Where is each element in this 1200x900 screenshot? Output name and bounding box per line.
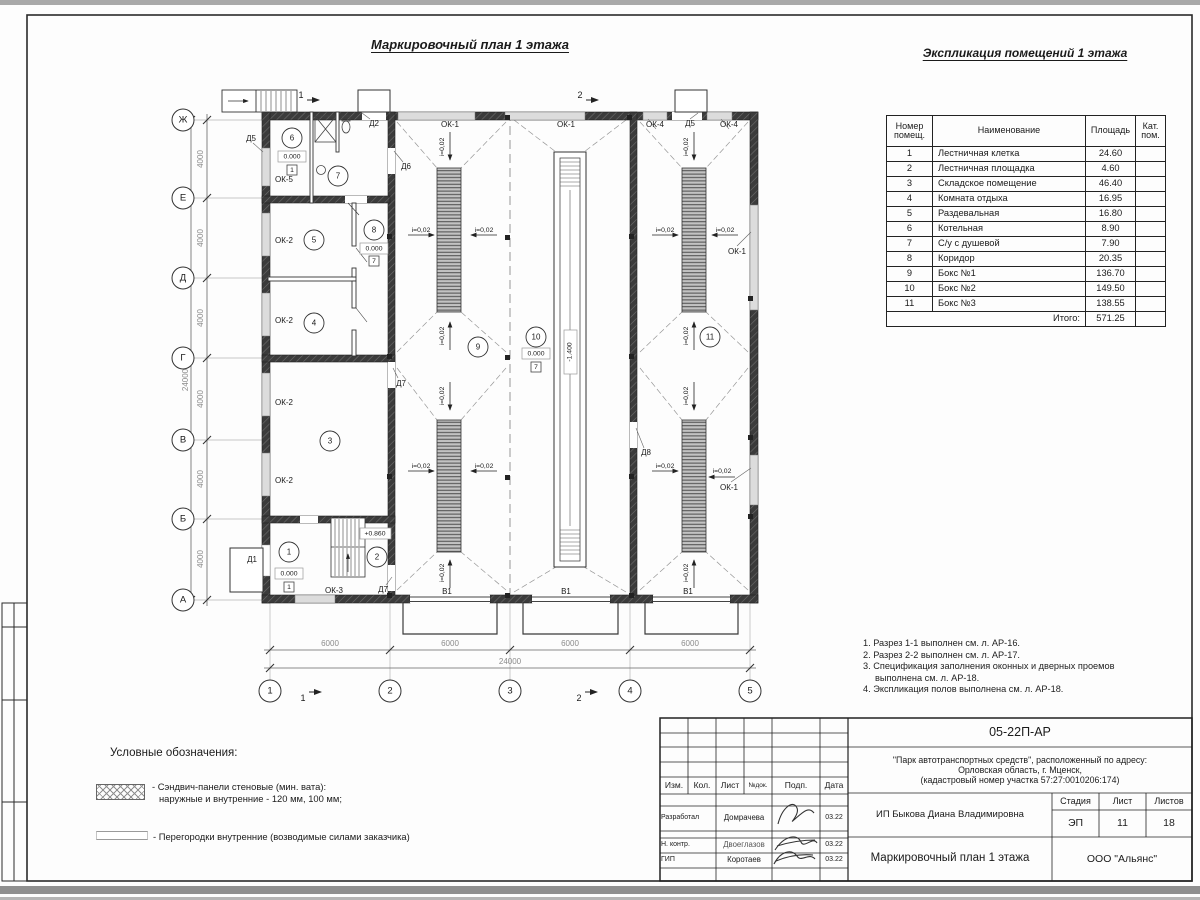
table-row: 6 Котельная 8.90 xyxy=(887,222,1166,237)
room-num-cell: 10 xyxy=(887,282,933,297)
name-gip: Коротаев xyxy=(716,853,772,868)
table-row: 10 Бокс №2 149.50 xyxy=(887,282,1166,297)
legend-title: Условные обозначения: xyxy=(110,747,237,759)
label-d6: Д6 xyxy=(401,162,411,171)
dim-4000: 4000 xyxy=(196,470,205,488)
table-row: 5 Раздевальная 16.80 xyxy=(887,207,1166,222)
table-row: 2 Лестничная площадка 4.60 xyxy=(887,162,1166,177)
col-ndoc: №док. xyxy=(744,777,772,794)
total-label: Итого: xyxy=(887,312,1086,327)
leader-lines xyxy=(253,113,751,585)
label-ok1: ОК-1 xyxy=(557,120,576,129)
slope-label: i=0,02 xyxy=(683,563,690,582)
slope-label: i=0,02 xyxy=(656,227,675,234)
slope-label: i=0,02 xyxy=(683,326,690,345)
axis-row-label: Б xyxy=(180,514,186,525)
note-item: 1. Разрез 1-1 выполнен см. л. АР-16. xyxy=(863,638,1155,650)
col-podp: Подп. xyxy=(772,777,820,794)
room-number: 3 xyxy=(328,437,333,446)
doc-number: 05-22П-АР xyxy=(848,718,1192,747)
stage-label: Стадия xyxy=(1052,793,1099,810)
gate-aprons xyxy=(403,603,738,634)
client-name: ИП Быкова Диана Владимировна xyxy=(848,793,1052,837)
room-name-cell: Лестничная клетка xyxy=(933,147,1086,162)
label-d5: Д5 xyxy=(685,119,695,128)
slope-label: i=0,02 xyxy=(683,386,690,405)
section-mark-1: 1 xyxy=(300,693,305,703)
axis-row-label: Ж xyxy=(179,115,188,126)
slope-label: i=0,02 xyxy=(475,463,494,470)
table-header-row: Номер помещ. Наименование Площадь Кат. п… xyxy=(887,116,1166,147)
label-ok1: ОК-1 xyxy=(720,483,739,492)
room-name-cell: Раздевальная xyxy=(933,207,1086,222)
col-izm: Изм. xyxy=(660,777,688,794)
dim-4000: 4000 xyxy=(196,550,205,568)
label-ok1: ОК-1 xyxy=(728,247,747,256)
table-row: 1 Лестничная клетка 24.60 xyxy=(887,147,1166,162)
section-mark-2: 2 xyxy=(577,90,582,100)
sanitary-fixtures xyxy=(315,116,350,175)
room-area-cell: 7.90 xyxy=(1086,237,1136,252)
label-d8: Д8 xyxy=(641,448,651,457)
note-item: 4. Экспликация полов выполнена см. л. АР… xyxy=(863,684,1155,696)
sheets-value: 18 xyxy=(1146,810,1192,837)
label-ok5: ОК-5 xyxy=(275,175,294,184)
sink-icon xyxy=(317,166,326,175)
explication-table: Номер помещ. Наименование Площадь Кат. п… xyxy=(886,115,1166,327)
col-kol: Кол. xyxy=(688,777,716,794)
room-kat-cell xyxy=(1136,267,1166,282)
drawing-sheet: Ж Е Д Г В Б А 1 2 3 4 5 4000 4000 4000 4… xyxy=(0,0,1200,900)
note-item: 2. Разрез 2-2 выполнен см. л. АР-17. xyxy=(863,650,1155,662)
section-mark-2: 2 xyxy=(576,693,581,703)
room-num-cell: 4 xyxy=(887,192,933,207)
level-zero: 0.000 xyxy=(365,246,382,253)
axis-row-label: Е xyxy=(180,193,186,204)
room-num-cell: 9 xyxy=(887,267,933,282)
room-number: 10 xyxy=(532,333,541,342)
room-kat-cell xyxy=(1136,162,1166,177)
axis-col-label: 1 xyxy=(267,686,272,697)
room-num-cell: 8 xyxy=(887,252,933,267)
floor-type: 1 xyxy=(287,584,291,591)
label-d2: Д2 xyxy=(369,119,379,128)
sheet-value: 11 xyxy=(1099,810,1146,837)
dim-6000: 6000 xyxy=(561,639,579,648)
room-area-cell: 20.35 xyxy=(1086,252,1136,267)
label-d1: Д1 xyxy=(247,555,257,564)
date-gip: 03.22 xyxy=(820,853,848,868)
dim-4000: 4000 xyxy=(196,390,205,408)
signature-icon xyxy=(775,837,817,850)
room-number: 4 xyxy=(312,319,317,328)
legend-item-2: - Перегородки внутренние (возводимые сил… xyxy=(153,831,493,843)
slope-label: i=0,02 xyxy=(439,326,446,345)
room-name-cell: Коридор xyxy=(933,252,1086,267)
room-kat-cell xyxy=(1136,192,1166,207)
axis-col-label: 5 xyxy=(747,686,752,697)
room-area-cell: 4.60 xyxy=(1086,162,1136,177)
room-name-cell: Лестничная площадка xyxy=(933,162,1086,177)
level-zero: 0.000 xyxy=(280,571,297,578)
sheet-label: Лист xyxy=(1099,793,1146,810)
legend-item-1: - Сэндвич-панели стеновые (мин. вата): н… xyxy=(152,781,452,805)
name-developer: Домрачева xyxy=(716,806,772,831)
label-d5: Д5 xyxy=(246,134,256,143)
dim-6000: 6000 xyxy=(441,639,459,648)
date-ncontrol: 03.22 xyxy=(820,838,848,853)
floor-type: 7 xyxy=(534,364,538,371)
room-area-cell: 16.80 xyxy=(1086,207,1136,222)
room-number: 1 xyxy=(287,548,292,557)
room-kat-cell xyxy=(1136,147,1166,162)
room-number: 8 xyxy=(372,226,377,235)
axis-row-label: Д xyxy=(180,273,187,284)
explication-title: Экспликация помещений 1 этажа xyxy=(880,44,1170,62)
room-number: 6 xyxy=(290,134,295,143)
date-developer: 03.22 xyxy=(820,806,848,831)
axis-col-label: 2 xyxy=(387,686,392,697)
signatures xyxy=(774,804,817,864)
project-line-3: (кадастровый номер участка 57:27:0010206… xyxy=(921,775,1120,785)
label-ok4: ОК-4 xyxy=(646,120,665,129)
table-row: 11 Бокс №3 138.55 xyxy=(887,297,1166,312)
signature-icon xyxy=(774,852,815,864)
stage-value: ЭП xyxy=(1052,810,1099,837)
room-kat-cell xyxy=(1136,252,1166,267)
slope-label: i=0,02 xyxy=(412,463,431,470)
legend-swatch-partition xyxy=(96,831,148,840)
notes-list: 1. Разрез 1-1 выполнен см. л. АР-16. 2. … xyxy=(863,638,1155,696)
legend-swatch-sandwich-panel xyxy=(96,784,145,800)
table-row: 4 Комната отдыха 16.95 xyxy=(887,192,1166,207)
col-list: Лист xyxy=(716,777,744,794)
dim-4000: 4000 xyxy=(196,150,205,168)
room-kat-cell xyxy=(1136,207,1166,222)
axis-row-label: Г xyxy=(180,353,185,364)
room-number: 5 xyxy=(312,236,317,245)
exterior-stair xyxy=(222,90,297,112)
plan-title-text: Маркировочный план 1 этажа xyxy=(371,37,569,52)
label-ok2: ОК-2 xyxy=(275,236,294,245)
label-d7: Д7 xyxy=(378,585,388,594)
room-area-cell: 24.60 xyxy=(1086,147,1136,162)
axis-col-label: 4 xyxy=(627,686,632,697)
level-plus: +0.860 xyxy=(365,531,386,538)
room-num-cell: 3 xyxy=(887,177,933,192)
slope-label: i=0,02 xyxy=(475,227,494,234)
room-number: 9 xyxy=(476,343,481,352)
sheets-label: Листов xyxy=(1146,793,1192,810)
table-row: 8 Коридор 20.35 xyxy=(887,252,1166,267)
legend-item-1-line2: наружные и внутренние - 120 мм, 100 мм; xyxy=(152,793,452,805)
room-name-cell: Бокс №2 xyxy=(933,282,1086,297)
room-area-cell: 8.90 xyxy=(1086,222,1136,237)
room-num-cell: 11 xyxy=(887,297,933,312)
room-area-cell: 138.55 xyxy=(1086,297,1136,312)
role-gip: ГИП xyxy=(661,853,715,868)
table-total-row: Итого: 571.25 xyxy=(887,312,1166,327)
floor-type: 1 xyxy=(290,167,294,174)
label-v1: В1 xyxy=(683,587,693,596)
room-name-cell: Бокс №1 xyxy=(933,267,1086,282)
room-num-cell: 1 xyxy=(887,147,933,162)
level-minus: -1.400 xyxy=(567,342,574,361)
label-ok4: ОК-4 xyxy=(720,120,739,129)
legend-item-1-line1: - Сэндвич-панели стеновые (мин. вата): xyxy=(152,781,452,793)
label-ok1: ОК-1 xyxy=(441,120,460,129)
label-ok2: ОК-2 xyxy=(275,398,294,407)
label-ok3: ОК-3 xyxy=(325,586,344,595)
room-num-cell: 7 xyxy=(887,237,933,252)
room-number: 2 xyxy=(375,553,380,562)
floor-type: 7 xyxy=(372,258,376,265)
label-v1: В1 xyxy=(442,587,452,596)
room-name-cell: С/у с душевой xyxy=(933,237,1086,252)
room-name-cell: Котельная xyxy=(933,222,1086,237)
room-kat-cell xyxy=(1136,222,1166,237)
slope-label: i=0,02 xyxy=(716,227,735,234)
signature-icon xyxy=(778,804,814,824)
slope-label: i=0,02 xyxy=(656,463,675,470)
room-num-cell: 2 xyxy=(887,162,933,177)
col-data: Дата xyxy=(820,777,848,794)
slope-label: i=0,02 xyxy=(439,563,446,582)
slope-label: i=0,02 xyxy=(683,137,690,156)
table-row: 3 Складское помещение 46.40 xyxy=(887,177,1166,192)
room-name-cell: Комната отдыха xyxy=(933,192,1086,207)
room-area-cell: 149.50 xyxy=(1086,282,1136,297)
room-area-cell: 16.95 xyxy=(1086,192,1136,207)
room-num-cell: 5 xyxy=(887,207,933,222)
sheet-title: Маркировочный план 1 этажа xyxy=(848,837,1052,881)
room-kat-cell xyxy=(1136,237,1166,252)
dim-4000: 4000 xyxy=(196,309,205,327)
project-line-2: Орловская область, г. Мценск, xyxy=(958,765,1082,775)
room-number: 11 xyxy=(706,333,715,342)
role-developer: Разработал xyxy=(661,806,715,831)
col-header-area: Площадь xyxy=(1086,116,1136,147)
label-ok2: ОК-2 xyxy=(275,316,294,325)
label-v1: В1 xyxy=(561,587,571,596)
room-area-cell: 136.70 xyxy=(1086,267,1136,282)
project-name: "Парк автотранспортных средств", располо… xyxy=(850,747,1190,793)
room-kat-cell xyxy=(1136,177,1166,192)
room-kat-cell xyxy=(1136,297,1166,312)
org-name: ООО "Альянс" xyxy=(1052,837,1192,881)
total-kat-cell xyxy=(1136,312,1166,327)
label-ok2: ОК-2 xyxy=(275,476,294,485)
dim-4000: 4000 xyxy=(196,229,205,247)
axis-row-label: В xyxy=(180,435,186,446)
dim-6000: 6000 xyxy=(681,639,699,648)
label-d7: Д7 xyxy=(396,379,406,388)
slope-label: i=0,02 xyxy=(713,468,732,475)
table-row: 7 С/у с душевой 7.90 xyxy=(887,237,1166,252)
slope-label: i=0,02 xyxy=(439,386,446,405)
room-kat-cell xyxy=(1136,282,1166,297)
project-line-1: "Парк автотранспортных средств", располо… xyxy=(893,755,1147,765)
room-name-cell: Бокс №3 xyxy=(933,297,1086,312)
room-name-cell: Складское помещение xyxy=(933,177,1086,192)
role-ncontrol: Н. контр. xyxy=(661,838,715,853)
room-area-cell: 46.40 xyxy=(1086,177,1136,192)
dim-24000: 24000 xyxy=(181,368,190,391)
plan-title: Маркировочный план 1 этажа xyxy=(310,36,630,54)
name-ncontrol: Двоеглазов xyxy=(716,838,772,853)
table-row: 9 Бокс №1 136.70 xyxy=(887,267,1166,282)
slope-label: i=0,02 xyxy=(439,137,446,156)
total-value: 571.25 xyxy=(1086,312,1136,327)
level-zero: 0.000 xyxy=(283,154,300,161)
interior-stair xyxy=(331,518,365,577)
col-header-name: Наименование xyxy=(933,116,1086,147)
level-zero: 0.000 xyxy=(527,351,544,358)
axis-row-label: А xyxy=(180,595,187,606)
room-number: 7 xyxy=(336,172,341,181)
section-mark-1: 1 xyxy=(298,90,303,100)
slope-label: i=0,02 xyxy=(412,227,431,234)
axis-col-label: 3 xyxy=(507,686,512,697)
dim-6000: 6000 xyxy=(321,639,339,648)
room-numbers: 1 2 3 4 5 6 7 8 9 10 11 xyxy=(279,128,720,567)
col-header-category: Кат. пом. xyxy=(1136,116,1166,147)
gate-openings xyxy=(410,595,730,603)
room-num-cell: 6 xyxy=(887,222,933,237)
note-item: 3. Спецификация заполнения оконных и две… xyxy=(863,661,1155,684)
elevation-marks: 0.000 0.000 0.000 0.000 +0.860 -1.400 1 … xyxy=(275,151,577,592)
col-header-number: Номер помещ. xyxy=(887,116,933,147)
dim-24000: 24000 xyxy=(499,657,522,666)
explication-title-text: Экспликация помещений 1 этажа xyxy=(923,46,1128,60)
